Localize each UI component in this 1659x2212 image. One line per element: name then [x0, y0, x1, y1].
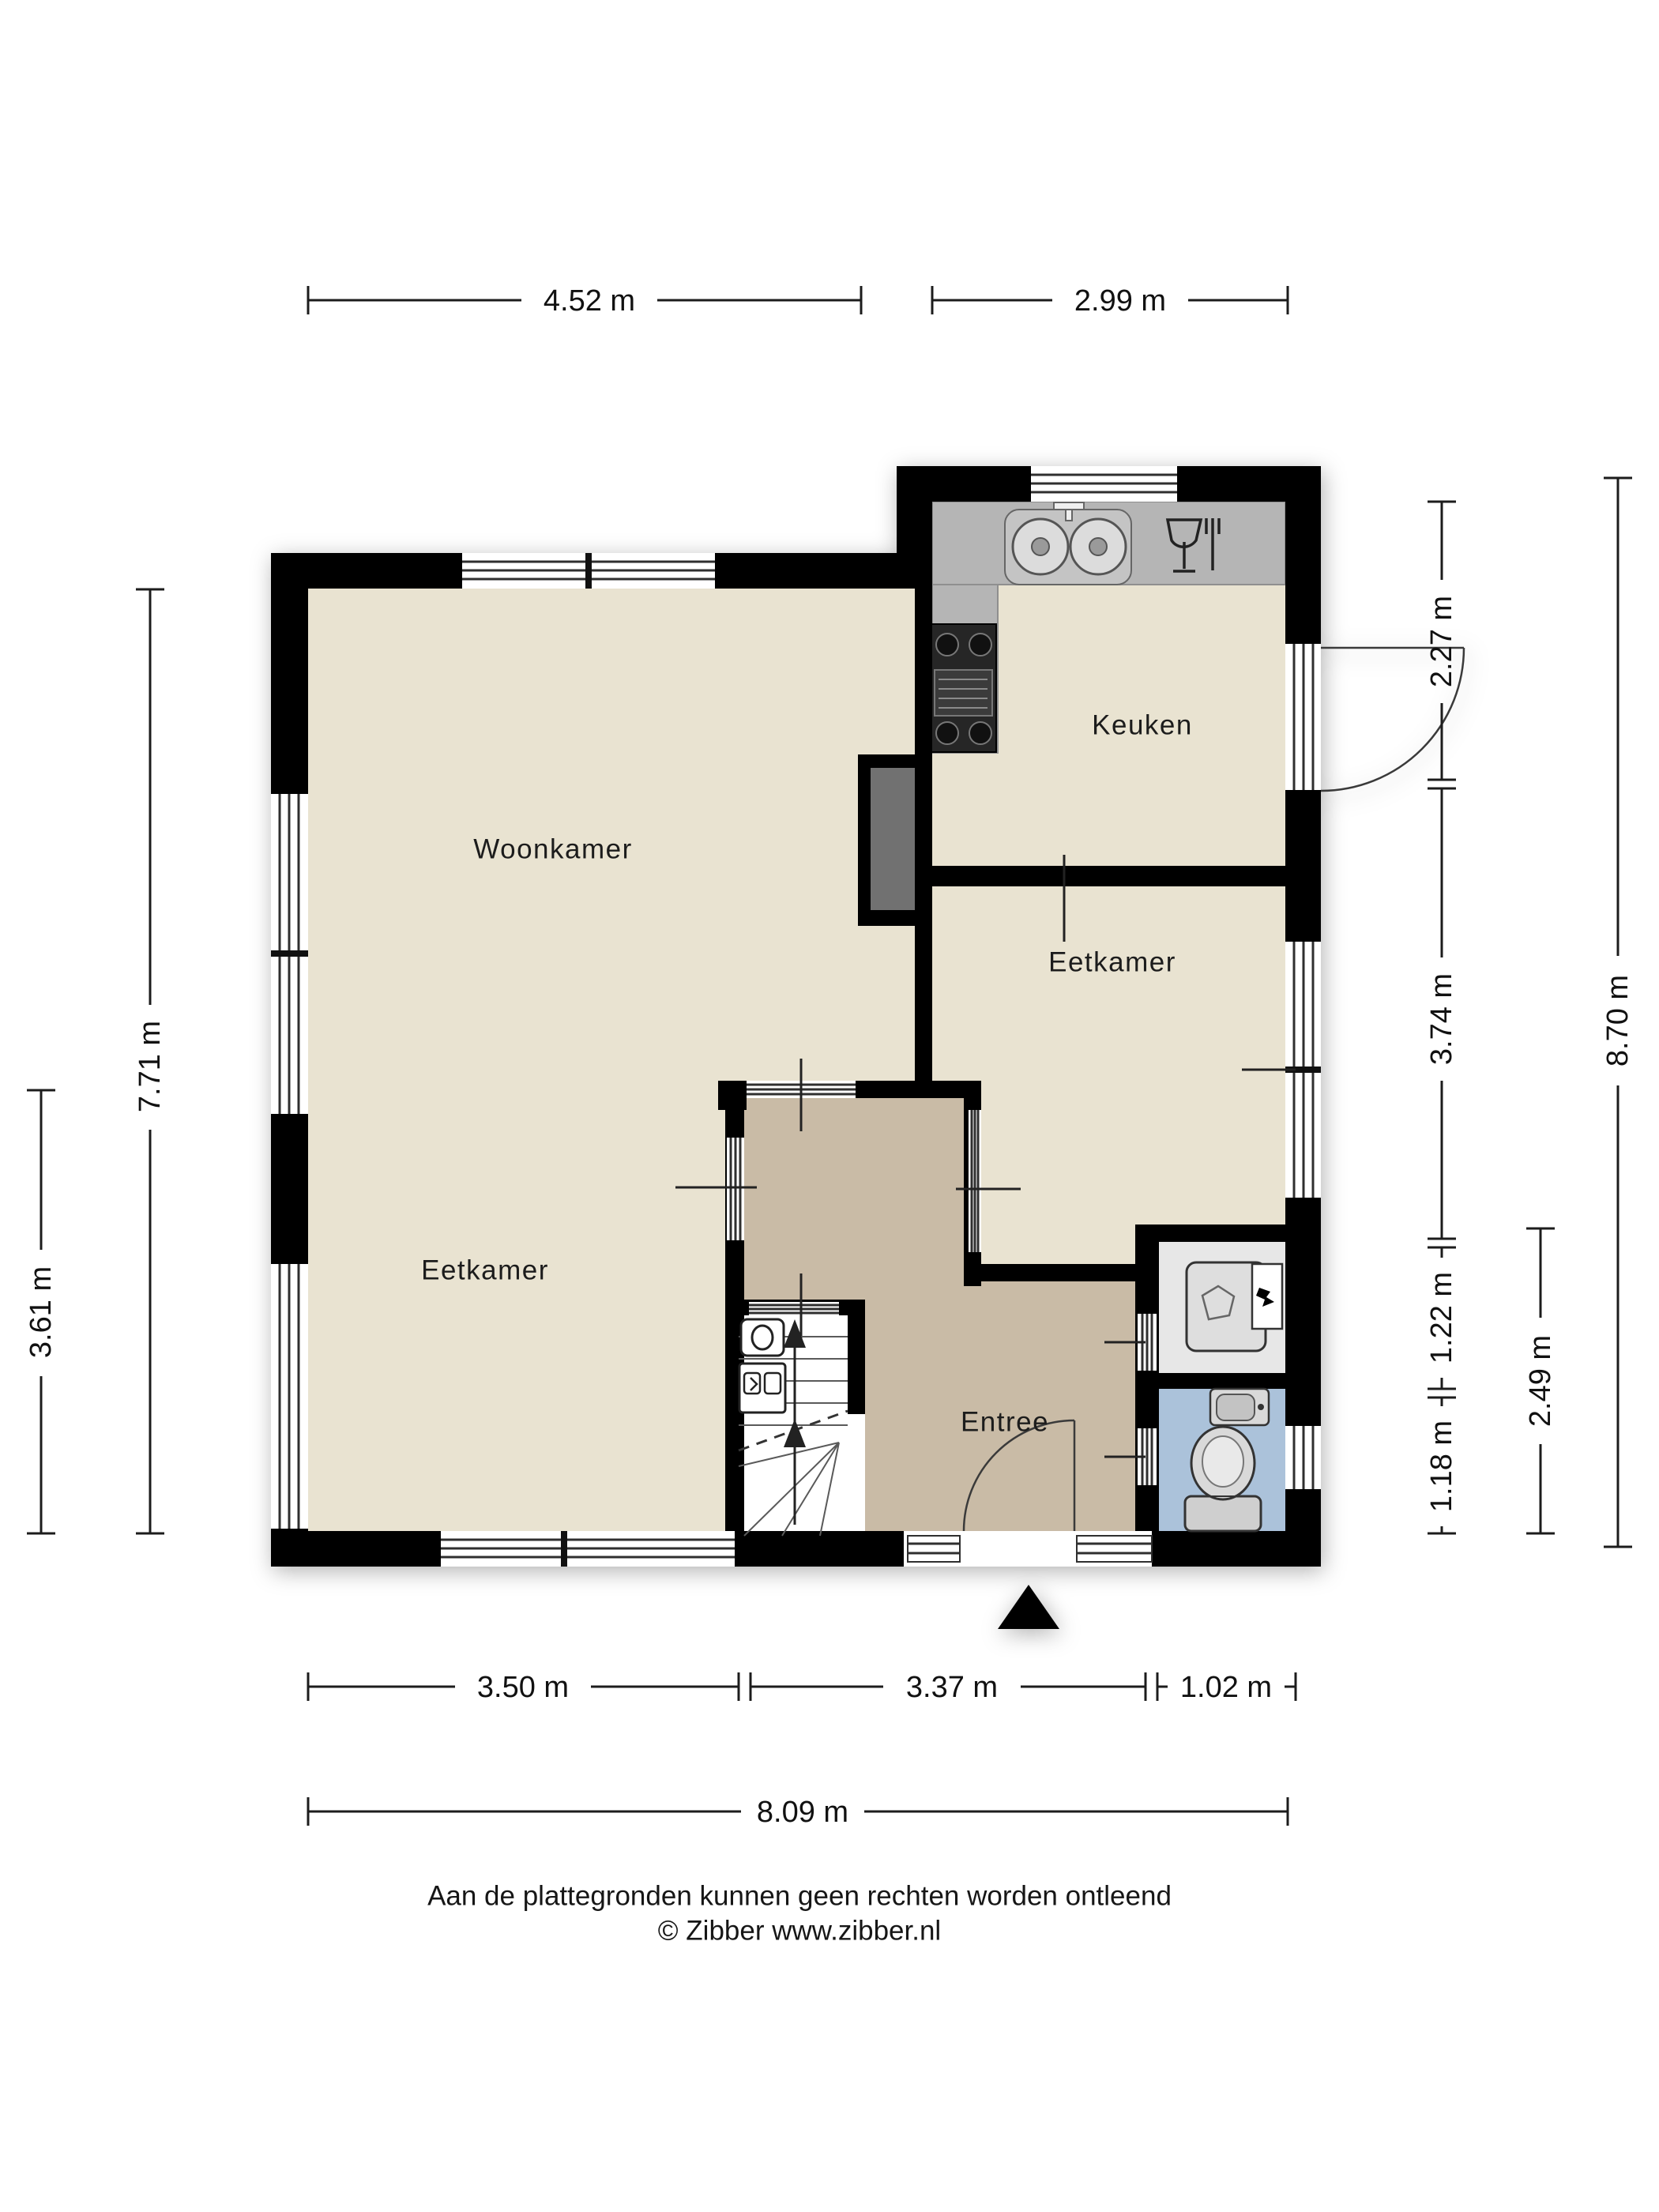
room-label-eetkamer-links: Eetkamer — [421, 1255, 549, 1286]
dimension-right-outer-1: 8.70 m — [1601, 478, 1635, 1547]
room-label-entree: Entree — [961, 1407, 1049, 1438]
svg-text:1.22 m: 1.22 m — [1425, 1272, 1458, 1364]
window-left-lower — [271, 1264, 308, 1529]
footer-copyright: © Zibber www.zibber.nl — [658, 1916, 941, 1947]
stove-icon — [930, 624, 996, 752]
svg-text:3.74 m: 3.74 m — [1425, 973, 1458, 1065]
svg-text:3.37 m: 3.37 m — [906, 1671, 998, 1704]
svg-text:3.50 m: 3.50 m — [477, 1671, 569, 1704]
window-left-upper — [271, 794, 308, 1114]
interior-window-entree-left — [727, 1138, 744, 1240]
window-woonkamer-top — [462, 553, 715, 589]
svg-text:1.02 m: 1.02 m — [1180, 1671, 1272, 1704]
dimension-bottom-1: 3.37 m — [750, 1671, 1145, 1704]
svg-text:8.70 m: 8.70 m — [1601, 975, 1635, 1066]
dimension-right-3: 1.18 m — [1425, 1398, 1458, 1533]
room-label-eetkamer-rechts: Eetkamer — [1048, 947, 1176, 978]
sink-icon — [1005, 502, 1131, 585]
svg-text:3.61 m: 3.61 m — [24, 1266, 58, 1358]
dimension-top-0: 4.52 m — [308, 284, 861, 318]
dimension-top-1: 2.99 m — [932, 284, 1288, 318]
room-label-keuken: Keuken — [1092, 710, 1193, 741]
svg-text:8.09 m: 8.09 m — [757, 1796, 848, 1829]
dimension-left-0: 7.71 m — [134, 589, 167, 1533]
chimney-fill — [871, 768, 915, 910]
interior-window-stairs-top — [749, 1302, 839, 1315]
stairs-opening — [848, 1414, 865, 1531]
interior-window-entree-right — [969, 1110, 981, 1252]
window-keuken-top — [1031, 466, 1177, 502]
dimension-right-1: 3.74 m — [1425, 788, 1458, 1239]
entrance-triangle-icon — [998, 1585, 1059, 1629]
floor-plan: Woonkamer Keuken Eetkamer Eetkamer Entre… — [271, 466, 1464, 1629]
footer-disclaimer: Aan de plattegronden kunnen geen rechten… — [427, 1881, 1172, 1912]
dimension-bottom-total: 8.09 m — [308, 1796, 1288, 1829]
dimension-right-outer-0: 2.49 m — [1524, 1228, 1557, 1533]
meter-cabinet-icon — [739, 1319, 785, 1413]
window-bottom-left — [441, 1531, 735, 1567]
window-toilet-right — [1285, 1426, 1321, 1489]
dimension-right-2: 1.22 m — [1425, 1247, 1458, 1389]
dimension-right-0: 2.27 m — [1425, 502, 1458, 780]
svg-text:2.49 m: 2.49 m — [1524, 1335, 1557, 1427]
toilet-icon — [1185, 1427, 1261, 1531]
svg-text:1.18 m: 1.18 m — [1425, 1420, 1458, 1512]
svg-text:2.99 m: 2.99 m — [1074, 284, 1166, 318]
dimension-bottom-0: 3.50 m — [308, 1671, 739, 1704]
svg-text:4.52 m: 4.52 m — [544, 284, 635, 318]
room-label-woonkamer: Woonkamer — [473, 834, 633, 865]
svg-text:7.71 m: 7.71 m — [134, 1021, 167, 1112]
floor-plan-canvas: Woonkamer Keuken Eetkamer Eetkamer Entre… — [0, 0, 1659, 2212]
dimension-bottom-2: 1.02 m — [1157, 1671, 1296, 1704]
svg-text:2.27 m: 2.27 m — [1425, 596, 1458, 687]
hand-basin-icon — [1210, 1389, 1269, 1425]
dimension-left-1: 3.61 m — [24, 1090, 58, 1533]
